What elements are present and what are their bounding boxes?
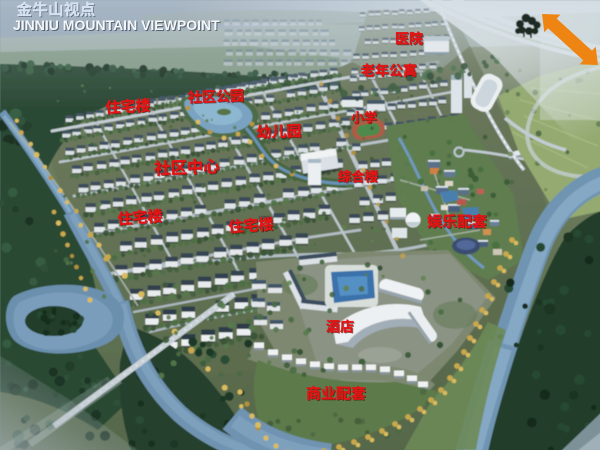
svg-text:JINNIU MOUNTAIN VIEWPOINT: JINNIU MOUNTAIN VIEWPOINT bbox=[13, 17, 220, 33]
